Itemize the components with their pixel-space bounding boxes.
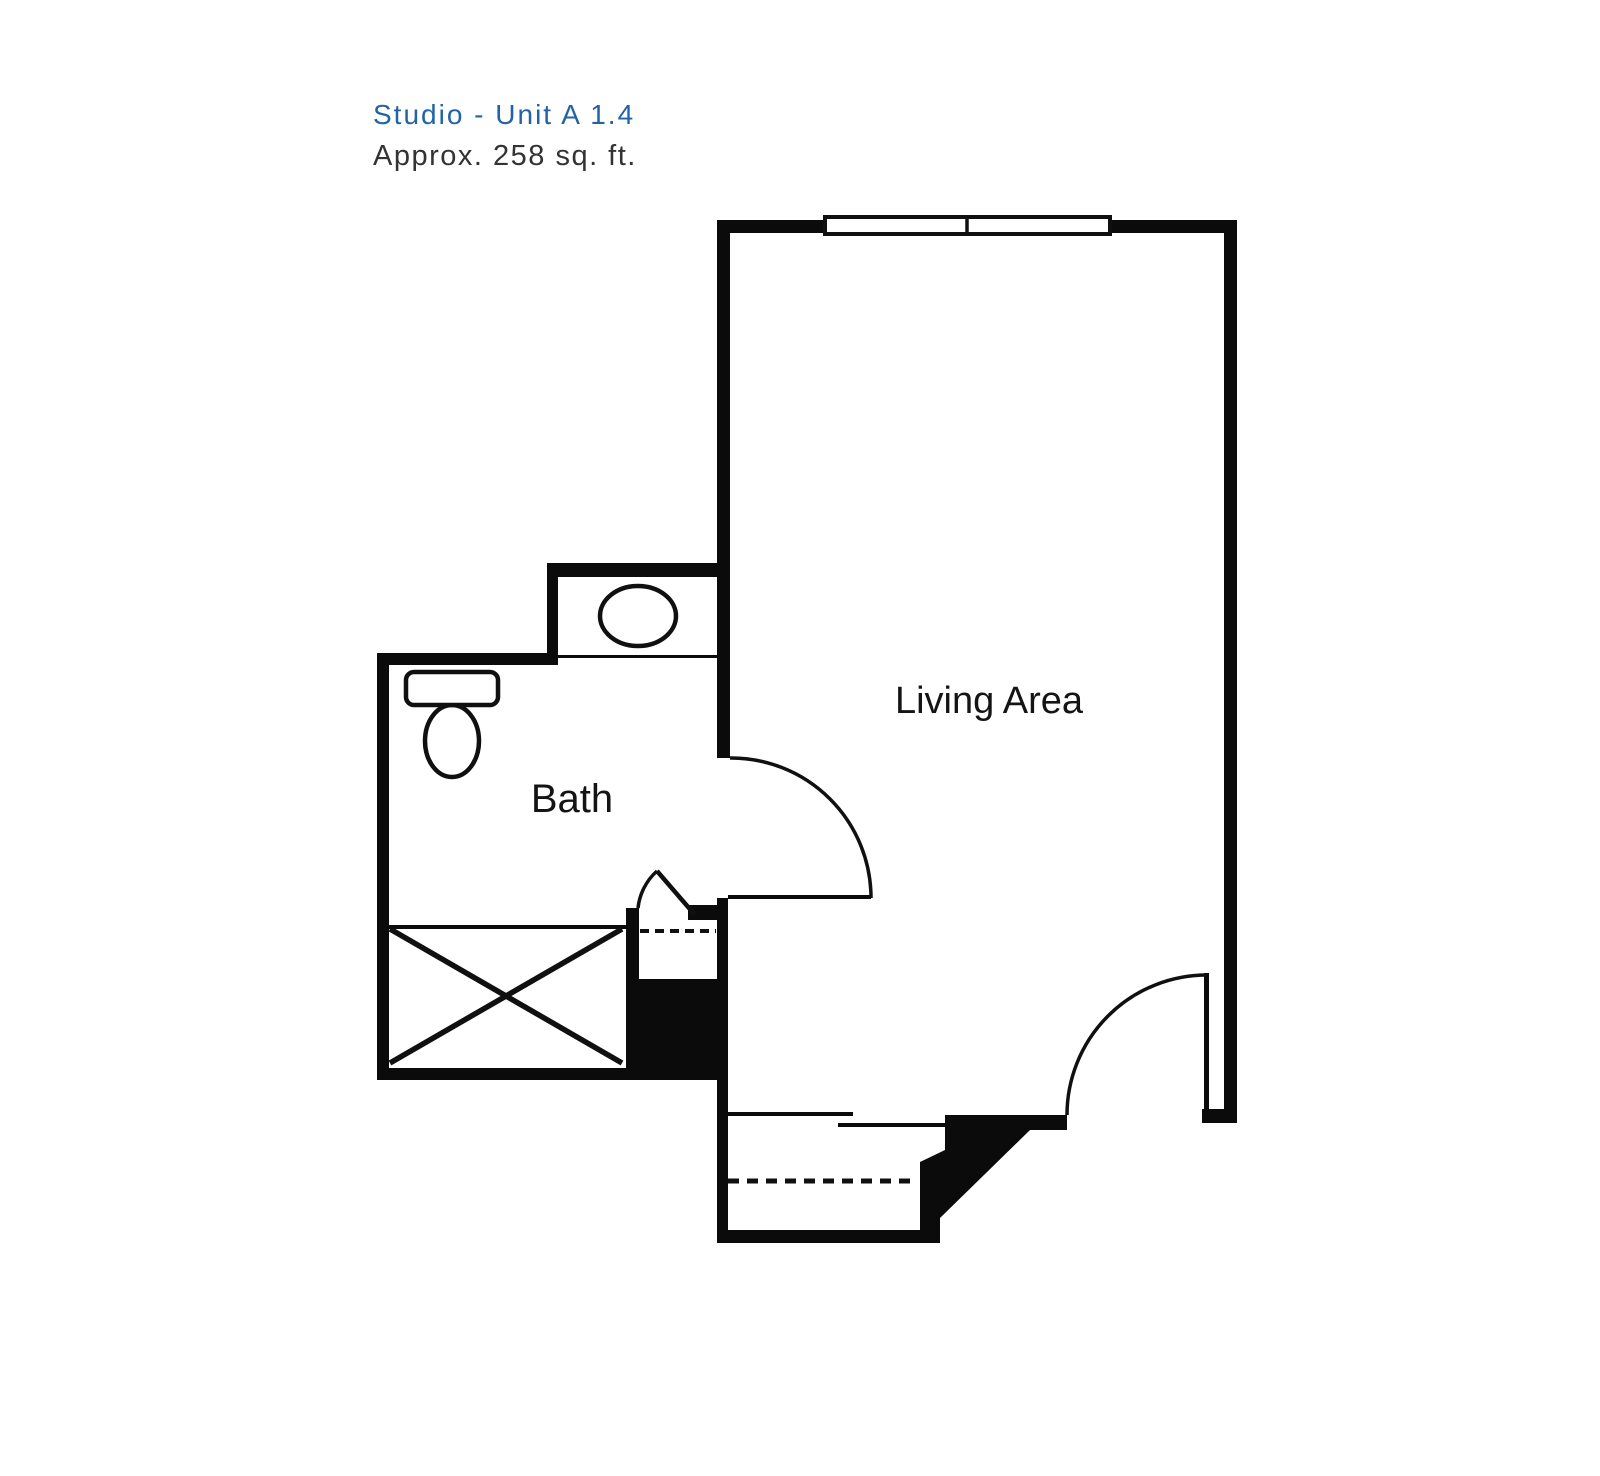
wall-bath-north [547, 563, 730, 577]
vanity-counter-edge [558, 655, 717, 658]
wall-right-end-cap [1202, 1109, 1237, 1123]
toilet-bowl-icon [425, 705, 479, 777]
bath-door-leaf [657, 871, 695, 915]
wall-bath-west-vertical [377, 653, 389, 1080]
wall-top-right-segment [1108, 220, 1237, 233]
floor-break-line-2 [838, 1123, 948, 1127]
wall-living-west-upper [717, 220, 730, 758]
bath-fixtures [406, 586, 676, 777]
sink-icon [600, 586, 676, 646]
wall-alcove-west [717, 1080, 728, 1242]
shower-tub [390, 929, 622, 1063]
wall-chase-solid [636, 979, 728, 1080]
living-area-label: Living Area [895, 680, 1084, 722]
wall-alcove-south [717, 1230, 935, 1243]
wall-shower-east [626, 908, 639, 1068]
wall-top-left-segment [717, 220, 827, 233]
floorplan-page: Studio - Unit A 1.4 Approx. 258 sq. ft. [0, 0, 1600, 1476]
entry-door-arc [1067, 975, 1207, 1115]
wall-angled-entry [920, 1115, 1067, 1243]
wall-bath-west-horizontal [377, 653, 558, 665]
bath-door-arc [638, 871, 657, 908]
wall-right [1224, 220, 1237, 1111]
floor-break-line-1 [728, 1112, 853, 1116]
entry-door-leaf [1204, 973, 1209, 1111]
walls [377, 220, 1237, 1243]
living-room-door-leaf [728, 895, 871, 899]
floorplan-drawing: Living Area Bath [0, 0, 1600, 1476]
wall-bath-step [547, 563, 558, 665]
bath-label: Bath [531, 777, 613, 821]
shower-top-edge [386, 925, 626, 929]
living-room-door-arc [730, 758, 871, 898]
window [825, 217, 1110, 234]
toilet-tank-icon [406, 672, 498, 705]
